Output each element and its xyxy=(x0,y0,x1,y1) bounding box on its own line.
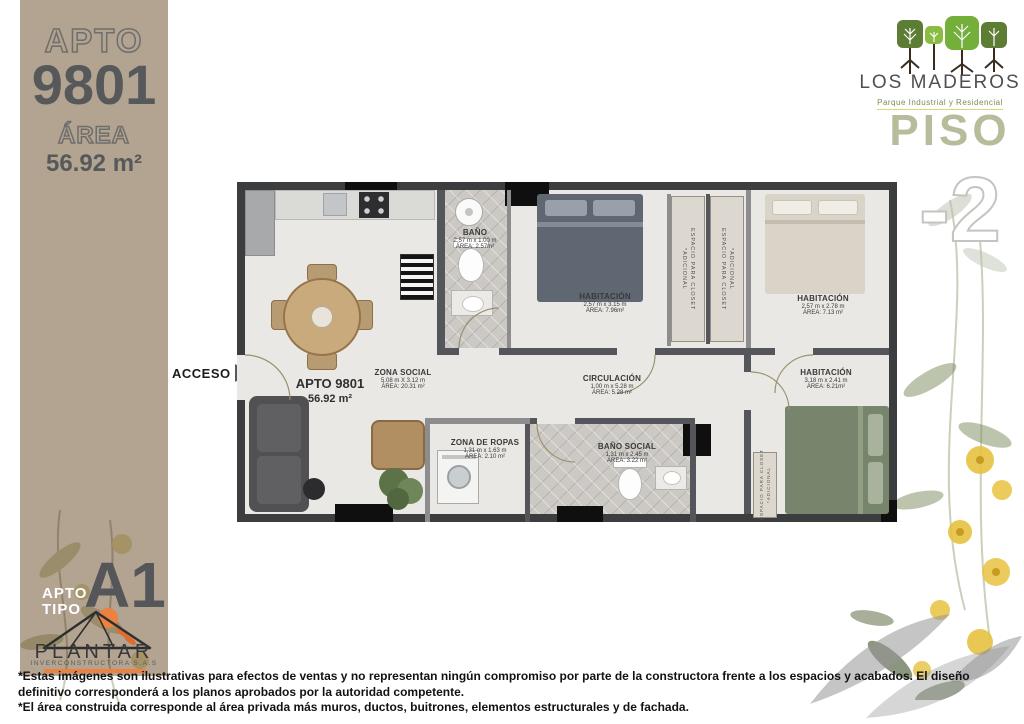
wall-zona-bano xyxy=(437,190,445,350)
bed-habitacion-1 xyxy=(537,194,643,302)
bathroom-sink xyxy=(451,290,493,316)
bed-habitacion-2 xyxy=(765,194,865,294)
builder-subtitle: INVERCONSTRUCTORA S.A.S xyxy=(20,660,168,667)
wall-right xyxy=(889,182,897,522)
wall-circ-hab3-a xyxy=(744,355,751,372)
stove xyxy=(359,192,389,218)
bathroom-sink-social xyxy=(655,466,687,490)
room-label-habitacion-1: HABITACIÓN 2.57 m x 3.15 m ÁREA: 7.96m² xyxy=(552,292,658,314)
room-label-bano-social: BAÑO SOCIAL 1.31 m x 2.45 m ÁREA: 3.22 m… xyxy=(575,442,679,464)
armchair xyxy=(371,420,425,470)
closet-strip-2: ESPACIO PARA CLOSET *ADICIONAL xyxy=(710,196,744,342)
sofa-cushion xyxy=(257,404,301,452)
wall-left-lower xyxy=(237,400,245,522)
room-label-habitacion-3: HABITACIÓN 3.18 m x 2.41 m ÁREA: 6.21m² xyxy=(772,368,880,390)
unit-label-block: APTO 9801 56.92 m² xyxy=(277,376,383,405)
sidebar: APTO 9801 ÁREA 56.92 m² APTO TIPO A1 PLA… xyxy=(20,0,168,676)
wall-banosocial-top-b xyxy=(575,418,695,424)
wall-banosocial-right xyxy=(690,424,696,522)
area-label: ÁREA xyxy=(20,122,168,150)
closet-strip-3: *ADICIONAL ESPACIO PARA CLOSET xyxy=(753,452,777,518)
plant xyxy=(387,488,409,510)
wall-ropas-left xyxy=(425,418,430,522)
wall-top xyxy=(237,182,897,190)
table-centerpiece xyxy=(311,306,333,328)
floor-label: PISO xyxy=(880,106,1020,156)
floor-plan: *ADICIONAL ESPACIO PARA CLOSET ESPACIO P… xyxy=(237,182,897,522)
apto-number: 9801 xyxy=(20,52,168,117)
unit-label: APTO 9801 xyxy=(277,376,383,391)
wall-h4 xyxy=(813,348,889,355)
brand-name: LOS MADEROS xyxy=(859,72,1020,93)
room-label-bano: BAÑO 2.57 m x 1.00 m ÁREA: 2.57m² xyxy=(437,228,513,250)
wall-banosocial-top-a xyxy=(530,418,537,424)
wall-closet-hab2 xyxy=(746,190,751,348)
toilet-bowl-social xyxy=(618,468,642,500)
closet-strip-1: *ADICIONAL ESPACIO PARA CLOSET xyxy=(671,196,705,342)
los-maderos-trees-icon xyxy=(895,12,1013,76)
unit-area: 56.92 m² xyxy=(277,393,383,405)
side-table xyxy=(303,478,325,500)
wall-bano-hab1 xyxy=(507,190,511,348)
window-bottom-1 xyxy=(335,504,393,522)
toilet-bowl xyxy=(458,248,484,282)
page: APTO 9801 ÁREA 56.92 m² APTO TIPO A1 PLA… xyxy=(0,0,1024,724)
shower-head xyxy=(455,198,483,226)
room-label-circulacion: CIRCULACIÓN 1.00 m x 5.28 m ÁREA: 5.28 m… xyxy=(559,374,665,396)
disclaimer-line-3: *El área construida corresponde al área … xyxy=(18,700,1020,716)
wall-ropas-top xyxy=(425,418,530,424)
kitchen-counter xyxy=(275,190,435,220)
area-value: 56.92 m² xyxy=(20,150,168,178)
sofa-cushion xyxy=(257,456,301,504)
bed-habitacion-3 xyxy=(785,406,889,514)
kitchen-tall-unit xyxy=(245,190,275,256)
wall-left-upper xyxy=(237,182,245,355)
kitchen-sink xyxy=(323,193,347,216)
acceso-label: ACCESO xyxy=(172,366,231,381)
window-bottom-2 xyxy=(557,506,603,522)
duct-block xyxy=(683,424,711,456)
floor-number: -2 xyxy=(900,158,1020,263)
room-label-habitacion-2: HABITACIÓN 2.57 m x 2.78 m ÁREA: 7.13 m² xyxy=(769,294,877,316)
wall-h3 xyxy=(655,348,775,355)
wall-h2 xyxy=(499,348,617,355)
brand-wordmark: LOS MADEROS xyxy=(858,72,1022,94)
disclaimer-line-1: *Estas imágenes son ilustrativas para ef… xyxy=(18,669,1020,685)
shelf-unit xyxy=(400,254,434,300)
wall-circ-hab3-b xyxy=(744,410,751,514)
disclaimer-line-2: definitivo corresponderá a los planos ap… xyxy=(18,685,1020,701)
washer-drum xyxy=(447,465,471,489)
room-label-zona-de-ropas: ZONA DE ROPAS 1.31 m x 1.63 m ÁREA: 2.10… xyxy=(433,438,537,460)
wall-h1 xyxy=(437,348,459,355)
disclaimer: *Estas imágenes son ilustrativas para ef… xyxy=(18,669,1020,716)
